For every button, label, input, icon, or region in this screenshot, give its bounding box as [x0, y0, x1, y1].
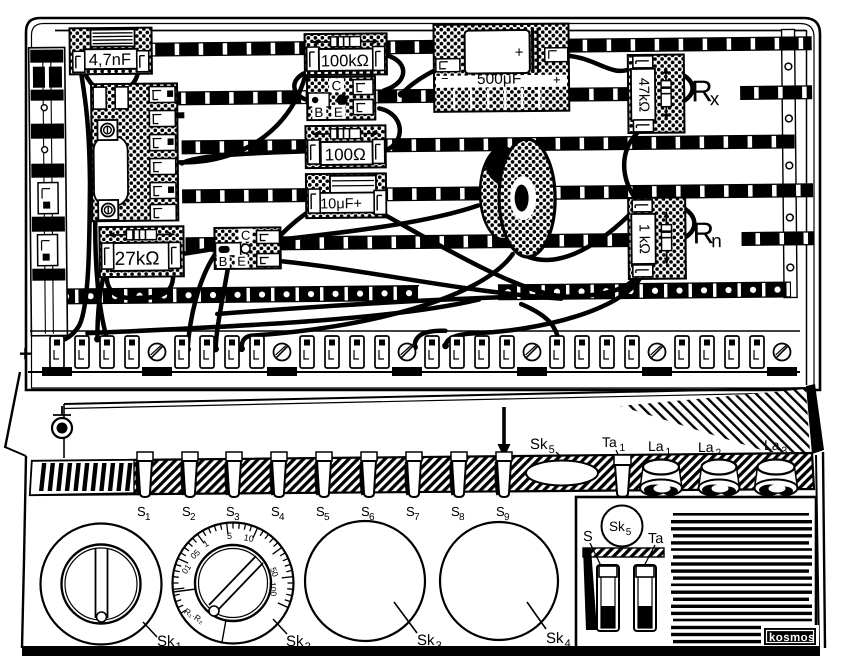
svg-text:1: 1 [145, 512, 151, 523]
svg-text:7: 7 [414, 512, 420, 523]
svg-text:La: La [648, 438, 664, 454]
svg-text:+: + [19, 341, 32, 366]
svg-text:Ta: Ta [648, 531, 664, 547]
svg-text:5: 5 [626, 527, 632, 538]
svg-text:27kΩ: 27kΩ [115, 249, 160, 270]
svg-text:Sk: Sk [546, 630, 564, 647]
svg-text:S: S [583, 529, 593, 545]
svg-text:10μF+: 10μF+ [320, 196, 362, 212]
svg-text:5: 5 [324, 512, 330, 523]
svg-text:100kΩ: 100kΩ [321, 52, 369, 70]
svg-text:kosmos: kosmos [769, 632, 815, 644]
svg-text:La: La [698, 439, 714, 455]
svg-text:E: E [237, 254, 246, 269]
svg-text:Sk: Sk [609, 519, 625, 534]
svg-text:B: B [314, 105, 323, 120]
svg-text:100Ω: 100Ω [325, 145, 366, 164]
svg-text:+: + [553, 72, 561, 87]
svg-text:2: 2 [190, 512, 196, 523]
svg-text:B: B [219, 254, 228, 269]
svg-text:Sk: Sk [530, 436, 548, 453]
svg-text:5: 5 [549, 444, 555, 456]
svg-text:+: + [515, 44, 524, 61]
svg-text:C: C [241, 228, 251, 243]
svg-text:x: x [710, 89, 720, 110]
svg-text:4,7nF: 4,7nF [89, 51, 131, 69]
svg-text:47kΩ: 47kΩ [635, 78, 651, 113]
svg-text:500μF: 500μF [477, 71, 521, 88]
svg-text:C: C [331, 78, 341, 93]
svg-text:Ta: Ta [602, 434, 617, 450]
svg-text:10: 10 [243, 532, 255, 544]
svg-text:3: 3 [234, 512, 240, 523]
svg-text:1: 1 [619, 442, 625, 454]
svg-text:1 kΩ: 1 kΩ [636, 224, 652, 254]
svg-text:La: La [764, 437, 780, 453]
svg-text:E: E [334, 105, 343, 120]
svg-text:n: n [711, 231, 722, 252]
svg-text:8: 8 [459, 512, 465, 523]
svg-text:4: 4 [279, 512, 285, 523]
svg-text:−: − [441, 71, 449, 86]
svg-text:5: 5 [227, 531, 232, 541]
svg-text:100: 100 [268, 582, 279, 597]
